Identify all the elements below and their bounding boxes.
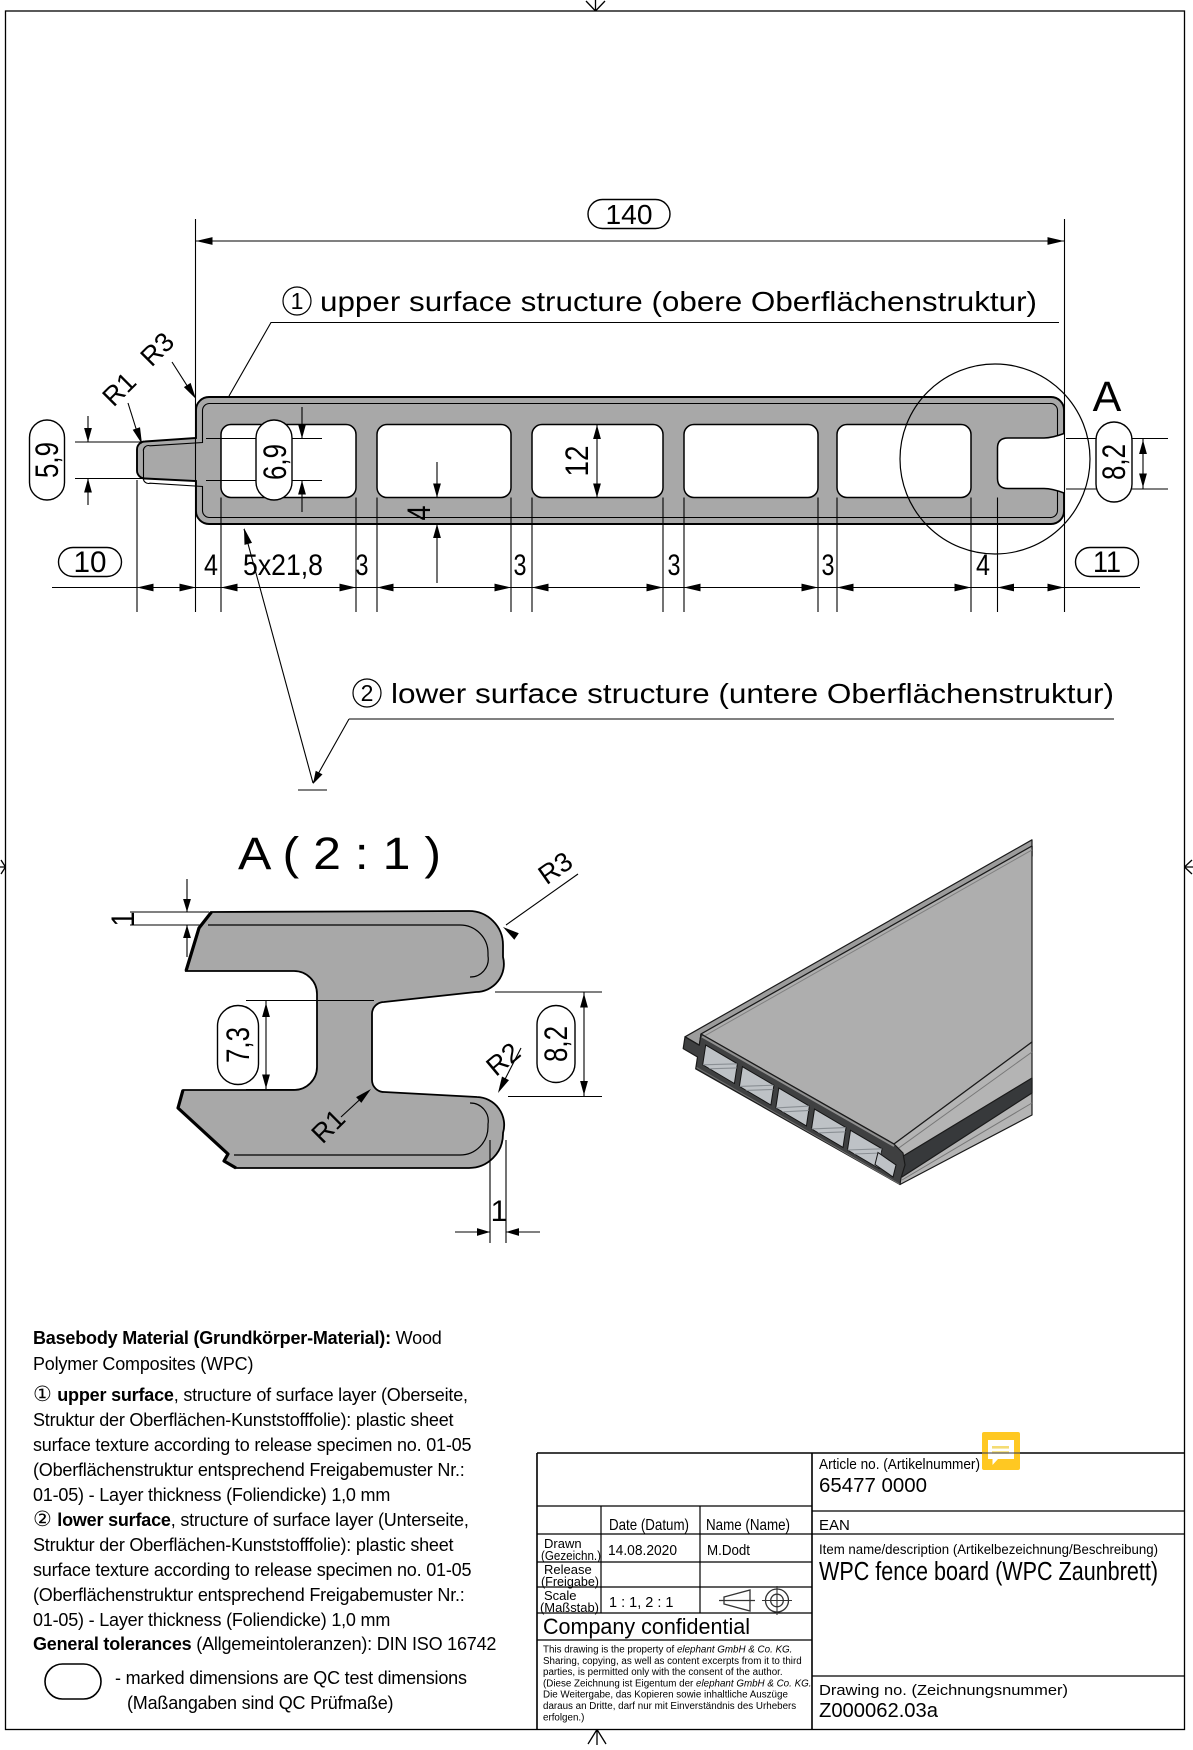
svg-text:65477 0000: 65477 0000 xyxy=(819,1475,927,1497)
svg-text:01-05) - Layer thickness (Foli: 01-05) - Layer thickness (Foliendicke) 1… xyxy=(33,1485,390,1505)
svg-text:8,2: 8,2 xyxy=(1096,444,1132,480)
svg-text:M.Dodt: M.Dodt xyxy=(707,1543,750,1559)
svg-text:5,9: 5,9 xyxy=(29,442,65,478)
svg-text:A ( 2 : 1 ): A ( 2 : 1 ) xyxy=(238,828,441,879)
svg-text:General tolerances (Allgemeint: General tolerances (Allgemeintoleranzen)… xyxy=(33,1634,496,1654)
svg-text:3: 3 xyxy=(822,549,835,582)
svg-text:10: 10 xyxy=(74,546,107,579)
svg-text:Article no. (Artikelnummer): Article no. (Artikelnummer) xyxy=(819,1457,980,1473)
svg-text:(Freigabe): (Freigabe) xyxy=(541,1574,599,1589)
svg-text:Sharing, copying, as well as c: Sharing, copying, as well as content exc… xyxy=(543,1656,802,1667)
svg-text:(Maßangaben sind QC Prüfmaße): (Maßangaben sind QC Prüfmaße) xyxy=(127,1693,393,1713)
svg-text:3: 3 xyxy=(668,549,681,582)
svg-text:erfolgen.): erfolgen.) xyxy=(543,1712,584,1723)
svg-text:- marked dimensions are QC tes: - marked dimensions are QC test dimensio… xyxy=(115,1668,467,1688)
svg-text:140: 140 xyxy=(606,199,653,230)
svg-text:12: 12 xyxy=(559,446,595,477)
svg-text:(Gezeichn.): (Gezeichn.) xyxy=(541,1548,601,1563)
svg-text:Struktur der Oberflächen-Kunst: Struktur der Oberflächen-Kunststofffolie… xyxy=(33,1535,454,1555)
svg-text:Date (Datum): Date (Datum) xyxy=(609,1517,689,1534)
svg-text:Struktur der Oberflächen-Kunst: Struktur der Oberflächen-Kunststofffolie… xyxy=(33,1410,454,1430)
svg-text:01-05) - Layer thickness (Foli: 01-05) - Layer thickness (Foliendicke) 1… xyxy=(33,1610,390,1630)
svg-text:11: 11 xyxy=(1093,546,1121,579)
svg-text:5x21,8: 5x21,8 xyxy=(243,549,323,582)
svg-text:1: 1 xyxy=(105,912,141,927)
svg-text:1 : 1, 2 : 1: 1 : 1, 2 : 1 xyxy=(609,1595,674,1611)
svg-text:Item name/description (Artikel: Item name/description (Artikelbezeichnun… xyxy=(819,1541,1158,1557)
svg-text:This drawing is the property o: This drawing is the property of elephant… xyxy=(543,1645,792,1656)
svg-text:Company confidential: Company confidential xyxy=(543,1614,750,1639)
svg-text:Z000062.03a: Z000062.03a xyxy=(819,1700,939,1722)
svg-text:Die Weitergabe, das Kopieren s: Die Weitergabe, das Kopieren sowie inhal… xyxy=(543,1690,788,1701)
svg-text:EAN: EAN xyxy=(819,1517,850,1534)
svg-text:3: 3 xyxy=(356,549,369,582)
svg-text:2: 2 xyxy=(361,680,374,706)
svg-text:Basebody Material (Grundkörper: Basebody Material (Grundkörper-Material)… xyxy=(33,1328,442,1348)
svg-text:parties, is permitted only wit: parties, is permitted only with the cons… xyxy=(543,1667,783,1678)
svg-text:(Oberflächenstruktur entsprech: (Oberflächenstruktur entsprechend Freiga… xyxy=(33,1585,465,1605)
svg-text:② lower surface, structure of: ② lower surface, structure of surface la… xyxy=(33,1508,469,1531)
svg-text:14.08.2020: 14.08.2020 xyxy=(608,1543,677,1559)
svg-text:(Diese Zeichnung ist Eigentum: (Diese Zeichnung ist Eigentum der elepha… xyxy=(543,1678,811,1689)
svg-text:4: 4 xyxy=(204,549,218,582)
svg-text:WPC fence board (WPC Zaunbrett: WPC fence board (WPC Zaunbrett) xyxy=(819,1558,1158,1586)
svg-text:Polymer Composites (WPC): Polymer Composites (WPC) xyxy=(33,1354,253,1374)
svg-text:daraus an Dritte, darf nur mit: daraus an Dritte, darf nur mit Einverstä… xyxy=(543,1701,796,1712)
svg-text:surface texture according to r: surface texture according to release spe… xyxy=(33,1560,471,1580)
svg-text:surface texture according to r: surface texture according to release spe… xyxy=(33,1435,471,1455)
svg-text:7,3: 7,3 xyxy=(220,1027,256,1063)
svg-text:upper surface structure (obere: upper surface structure (obere Oberfläch… xyxy=(320,286,1037,317)
svg-text:Name (Name): Name (Name) xyxy=(706,1517,790,1534)
svg-text:① upper surface, structure of: ① upper surface, structure of surface la… xyxy=(33,1383,468,1406)
svg-text:8,2: 8,2 xyxy=(538,1026,574,1062)
svg-text:A: A xyxy=(1093,373,1122,421)
svg-text:1: 1 xyxy=(491,1195,508,1228)
svg-text:Drawing no. (Zeichnungsnummer): Drawing no. (Zeichnungsnummer) xyxy=(819,1682,1068,1699)
svg-text:(Oberflächenstruktur entsprech: (Oberflächenstruktur entsprechend Freiga… xyxy=(33,1460,465,1480)
svg-text:(Maßstab): (Maßstab) xyxy=(540,1600,599,1615)
svg-text:3: 3 xyxy=(514,549,527,582)
svg-text:6,9: 6,9 xyxy=(257,444,293,480)
svg-text:lower surface structure (unter: lower surface structure (untere Oberfläc… xyxy=(391,678,1114,709)
svg-text:1: 1 xyxy=(291,288,304,314)
svg-text:4: 4 xyxy=(401,506,437,521)
